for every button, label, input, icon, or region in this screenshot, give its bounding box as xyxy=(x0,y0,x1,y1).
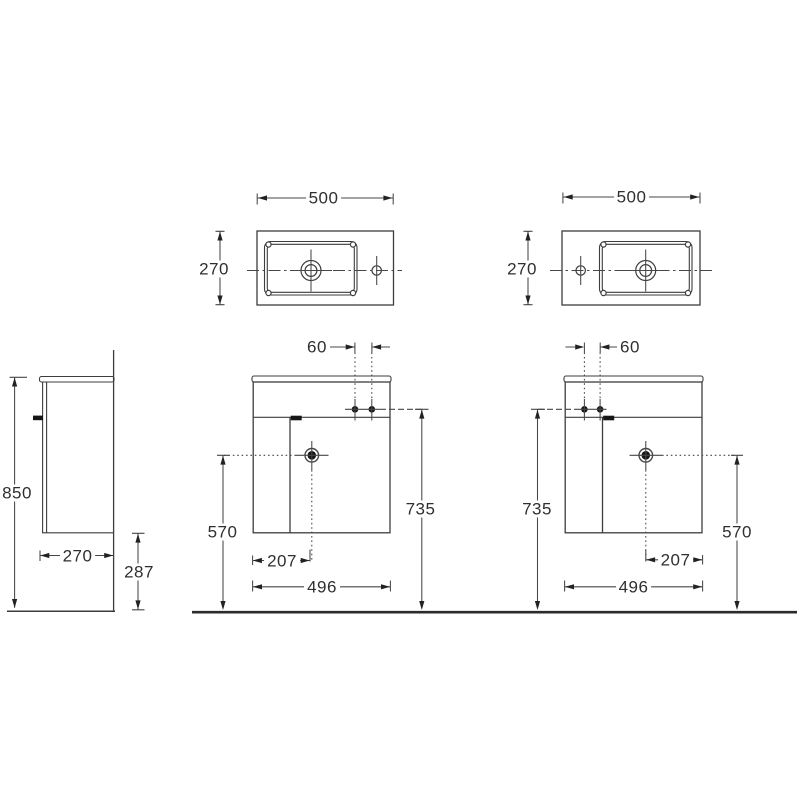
rim-corner-detail xyxy=(685,242,690,247)
top-view-left-basin xyxy=(216,194,403,306)
cabinet-side-outline xyxy=(42,382,114,533)
dim-label-fr-width: 496 xyxy=(616,579,652,596)
rim-corner-detail xyxy=(350,290,355,295)
door-handle-side xyxy=(33,416,43,421)
dim-label-top-right-depth: 270 xyxy=(504,260,540,277)
dim-label-side-depth: 270 xyxy=(60,547,96,564)
rim-corner-detail xyxy=(685,290,690,295)
top-view-right-basin xyxy=(524,193,713,306)
dim-label-fr-drain-height: 570 xyxy=(719,523,755,540)
front-view-right-cabinet xyxy=(531,343,743,611)
rim-corner-detail xyxy=(601,242,606,247)
rim-corner-detail xyxy=(266,242,271,247)
countertop-front xyxy=(252,376,391,382)
waste-extension-dotted xyxy=(224,455,312,560)
dim-label-fl-drain-offset: 207 xyxy=(264,552,300,569)
dim-label-top-left-depth: 270 xyxy=(196,260,232,277)
dim-label-fl-width: 496 xyxy=(304,579,340,596)
countertop-side xyxy=(40,377,115,383)
dim-label-side-height: 850 xyxy=(0,484,35,501)
door-handle xyxy=(603,416,614,421)
dim-label-fl-height: 735 xyxy=(403,501,439,518)
dim-label-top-right-width: 500 xyxy=(614,188,650,205)
dim-label-side-clearance: 287 xyxy=(121,564,157,581)
drawing-linework xyxy=(0,0,800,799)
dim-label-fr-height: 735 xyxy=(519,501,555,518)
rim-corner-detail xyxy=(350,242,355,247)
waste-extension-dotted xyxy=(646,455,737,558)
cabinet-outline xyxy=(565,382,702,533)
door-handle xyxy=(291,416,302,421)
rim-corner-detail xyxy=(266,290,271,295)
front-view-left-cabinet xyxy=(217,343,429,611)
technical-drawing-canvas: 500 270 500 270 850 270 287 60 735 570 2… xyxy=(0,0,800,799)
dim-label-top-left-width: 500 xyxy=(306,189,342,206)
dim-label-fl-tap-spacing: 60 xyxy=(304,338,330,355)
dim-label-fr-tap-spacing: 60 xyxy=(617,339,643,356)
dim-60-line xyxy=(566,343,618,353)
dim-60-arrows xyxy=(575,344,609,349)
cabinet-outline xyxy=(253,382,390,533)
rim-corner-detail xyxy=(601,290,606,295)
dim-label-fr-drain-offset: 207 xyxy=(658,551,694,568)
dim-60-arrows xyxy=(346,344,381,349)
waste-crosshair xyxy=(296,441,329,470)
dim-label-fl-drain-height: 570 xyxy=(205,523,241,540)
waste-crosshair xyxy=(630,441,663,470)
